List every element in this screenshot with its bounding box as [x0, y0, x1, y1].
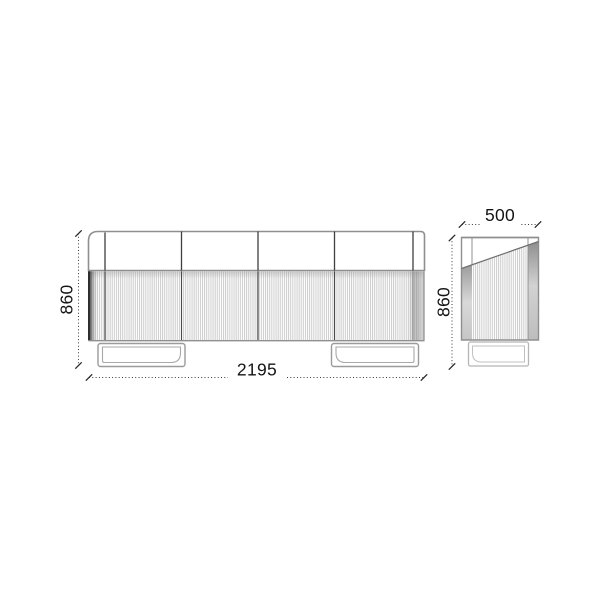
dimension-tick — [449, 235, 455, 241]
right-edge-shadow — [407, 271, 425, 340]
dimension-side-depth: 500 — [459, 205, 541, 229]
dimension-tick — [459, 221, 465, 227]
dimension-tick — [75, 362, 81, 368]
furniture-dimension-diagram: 860 2195 500 860 — [0, 0, 600, 600]
front-right-leg — [332, 344, 419, 367]
dimension-label: 2195 — [237, 360, 277, 380]
front-left-leg — [98, 344, 185, 367]
dimension-tick — [86, 374, 92, 380]
side-leg — [469, 342, 529, 366]
side-back-panel-shading — [528, 242, 539, 341]
front-view — [89, 232, 425, 367]
backrest-strip — [89, 232, 425, 271]
dimension-tick — [421, 374, 427, 380]
dimension-tick — [535, 221, 541, 227]
dimension-side-height: 860 — [434, 235, 456, 370]
dimension-front-height: 860 — [57, 230, 82, 368]
side-front-band — [462, 265, 473, 340]
dimension-label: 860 — [434, 287, 454, 317]
dimension-label: 860 — [57, 284, 77, 314]
side-view — [462, 238, 539, 367]
technical-drawing-canvas: 860 2195 500 860 — [0, 0, 600, 600]
fluted-front-panel — [89, 271, 425, 340]
fluted-top-shading — [89, 271, 425, 279]
dimension-label: 500 — [485, 205, 515, 225]
dimension-tick — [75, 230, 81, 236]
